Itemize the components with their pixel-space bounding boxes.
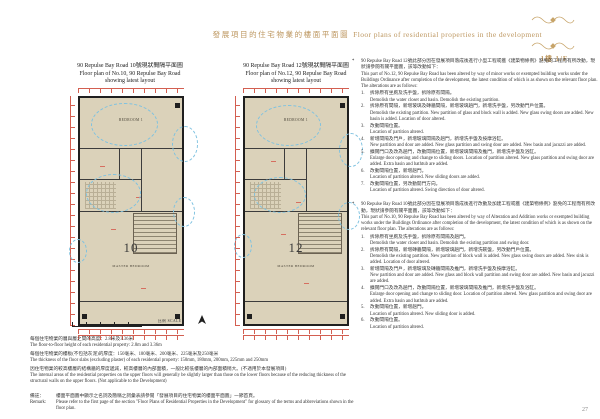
item-en: New partition and door are added. New gl… xyxy=(370,143,598,149)
item-en: Demolish the water closet and basin. Dem… xyxy=(370,98,598,104)
item-number: 5. xyxy=(361,150,365,156)
intro-en: This part of No.12, 90 Repulse Bay Road … xyxy=(361,72,598,91)
brochure-page: 發展項目的住宅物業的樓面平面圖Floor plans of residentia… xyxy=(0,0,600,419)
remark-en-label: Remark: xyxy=(30,400,46,406)
alteration-item: 6. 改動間隔位置。 Location of partition altered… xyxy=(361,318,598,331)
page-title: 發展項目的住宅物業的樓面平面圖Floor plans of residentia… xyxy=(213,29,542,40)
alterations-no12: * 90 Repulse Bay Road 12號此部分因在發展項目落成後進行小… xyxy=(352,59,598,194)
plan10-title: 90 Repulse Bay Road 10號現狀間隔平面圖 Floor pla… xyxy=(42,63,218,86)
revision-cloud xyxy=(254,177,307,214)
alteration-item: 3. 改動間隔位置。 Location of partition altered… xyxy=(361,124,598,137)
item-number: 6. xyxy=(361,318,365,324)
room-label-master-bedroom: MASTER BEDROOM xyxy=(80,264,182,268)
asterisk-marker: * xyxy=(352,59,354,65)
item-en: Demolish the existing partition. New par… xyxy=(370,254,598,267)
alteration-item: 7. 改動間隔位置，另改動開門方向。 Location of partition… xyxy=(361,182,598,195)
ornament-icon xyxy=(530,41,576,51)
house-number: 12 xyxy=(245,240,347,256)
alteration-item: 5. 改動間隔位置，新增趟門。 Location of partition al… xyxy=(361,305,598,318)
intro-zh: 90 Repulse Bay Road 12號此部分因在發展項目落成後進行小型工… xyxy=(361,59,598,72)
note-en: The floor-to-floor height of each reside… xyxy=(30,343,362,349)
item-en: Location of partition altered. xyxy=(370,325,598,331)
item-en: Location of partition altered. xyxy=(370,130,598,136)
alteration-item: 2. 拆除原有間隔，新增磚牆間隔，新增玻璃趟門，新增洗碗盤，另改動門戶位置。 D… xyxy=(361,248,598,267)
alteration-item: 4. 擴闊門口及改為趟門，改動間隔位置，新增玻璃間隔及推門，新增洗手盤及浴缸。 … xyxy=(361,286,598,305)
page-title-zh: 發展項目的住宅物業的樓面平面圖 xyxy=(213,30,350,39)
item-en: Location of partition altered. New slidi… xyxy=(370,175,598,181)
floor-plan-12: BEDROOM 1 12 MASTER BEDROOM xyxy=(243,96,349,326)
revision-cloud xyxy=(234,234,252,258)
alterations-no10: * 90 Repulse Bay Road 10號此部分因在發展項目落成後進行改… xyxy=(352,202,598,331)
page-number: 27 xyxy=(582,407,588,413)
dimension-line xyxy=(78,88,184,93)
asterisk-marker: * xyxy=(352,202,354,208)
alteration-item: 1. 拆除原有坐廁及洗手盤，拆除原有間隔及趟門。 Demolish the wa… xyxy=(361,235,598,248)
item-en: Location of partition altered. Swing dir… xyxy=(370,188,598,194)
remark-en: Remark: Please refer to the first page o… xyxy=(30,400,362,412)
scale-label: 比例 SCALE xyxy=(158,319,181,324)
dimension-line xyxy=(235,96,240,326)
alteration-item: 2. 拆除原有間隔，新增玻璃及磚牆間隔，新增玻璃趟門，新增洗手盤，另改動門戶位置… xyxy=(361,104,598,123)
item-en: Enlarge door opening and change to slidi… xyxy=(370,292,598,305)
floor-plan-10: BEDROOM 1 10 MASTER BEDROOM xyxy=(78,96,184,326)
item-number: 2. xyxy=(361,104,365,110)
remark-en-text: Please refer to the first page of the se… xyxy=(56,400,354,411)
alterations-column: * 90 Repulse Bay Road 12號此部分因在發展項目落成後進行小… xyxy=(352,59,598,339)
item-number: 1. xyxy=(361,91,365,97)
item-number: 4. xyxy=(361,286,365,292)
item-en: New partition and door are added. New gl… xyxy=(370,273,598,286)
remark-block: 備註： 樓面平面圖中顯示之名詞及簡稱之詞彙表請參閱「發展項目的住宅物業的樓面平面… xyxy=(30,394,362,413)
note-internal-areas: 因住宅物業的較高樓層的結構牆的厚度遞減，較高樓層的內部面積，一般比較低樓層的內部… xyxy=(30,367,362,386)
item-number: 1. xyxy=(361,235,365,241)
ornament-icon xyxy=(530,15,576,25)
page-title-en: Floor plans of residential properties in… xyxy=(353,30,542,39)
alteration-item: 4. 新增間隔及門戶，新增玻璃間隔及趟門，新增洗手盤及按摩浴缸。 New par… xyxy=(361,137,598,150)
note-floor-height: 每個住宅物業的層與層之間的高度：2.8米及3.36米 The floor-to-… xyxy=(30,337,362,349)
revision-cloud xyxy=(69,239,87,263)
house-number: 10 xyxy=(80,240,182,256)
alteration-item: 5. 擴闊門口及改為趟門，改動間隔位置，新增玻璃間隔及推門，新增洗手盤及浴缸。 … xyxy=(361,150,598,169)
item-en: Demolish the water closet and basin. Dem… xyxy=(370,241,598,247)
item-number: 2. xyxy=(361,248,365,254)
notes-block: 每個住宅物業的層與層之間的高度：2.8米及3.36米 The floor-to-… xyxy=(30,337,362,388)
revision-cloud xyxy=(172,126,198,162)
alteration-item: 1. 拆除原有坐廁及洗手盤，拆除原有間隔。 Demolish the water… xyxy=(361,91,598,104)
note-en: The internal areas of the residential pr… xyxy=(30,373,362,385)
note-slab-thickness: 每個住宅物業的樓板(不包括灰泥)的厚度：150毫米、180毫米、200毫米、22… xyxy=(30,352,362,364)
alteration-item: 6. 改動間隔位置，新增趟門。 Location of partition al… xyxy=(361,169,598,182)
item-number: 5. xyxy=(361,305,365,311)
item-en: Enlarge door opening and change to slidi… xyxy=(370,156,598,169)
dimension-line xyxy=(243,88,349,93)
plan10-title-en2: showing latest layout xyxy=(42,78,218,86)
alteration-item: 3. 新增間隔及門戶，新增玻璃及磚牆間隔及推門，新增洗手盤及按摩浴缸。 New … xyxy=(361,267,598,286)
plan10-title-zh: 90 Repulse Bay Road 10號現狀間隔平面圖 xyxy=(42,63,218,71)
item-number: 7. xyxy=(361,182,365,188)
item-number: 3. xyxy=(361,267,365,273)
note-en: The thickness of the floor slabs (exclud… xyxy=(30,358,362,364)
remark-zh-text: 樓面平面圖中顯示之名詞及簡稱之詞彙表請參閱「發展項目的住宅物業的樓面平面圖」一節… xyxy=(56,394,258,399)
room-label-master-bedroom: MASTER BEDROOM xyxy=(245,264,347,268)
dimension-line xyxy=(78,329,184,334)
scale-bar xyxy=(72,322,142,327)
dimension-line xyxy=(243,329,349,334)
item-en: Location of partition altered. New slidi… xyxy=(370,312,598,318)
item-en: Demolish the existing partition. New par… xyxy=(370,111,598,124)
item-number: 3. xyxy=(361,124,365,130)
plan10-title-en1: Floor plan of No.10, 90 Repulse Bay Road xyxy=(42,71,218,79)
dimension-line xyxy=(70,96,75,326)
revision-cloud xyxy=(173,197,195,227)
intro-zh: 90 Repulse Bay Road 10號此部分因在發展項目落成後進行改動及… xyxy=(361,202,598,215)
item-number: 4. xyxy=(361,137,365,143)
item-number: 6. xyxy=(361,169,365,175)
north-arrow-icon xyxy=(196,314,208,326)
intro-en: This part of No.10, 90 Repulse Bay Road … xyxy=(361,215,598,234)
